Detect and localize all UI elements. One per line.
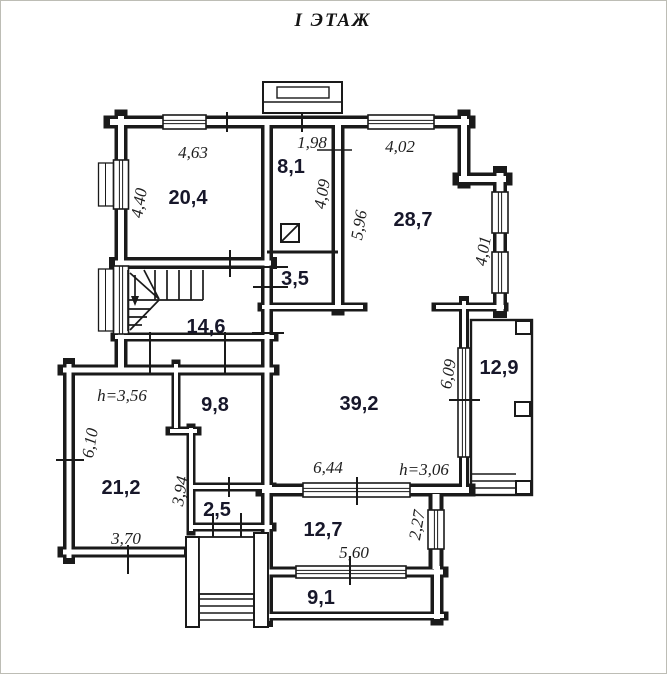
room-label-14-6: 14,6	[187, 316, 226, 338]
room-label-8-1: 8,1	[277, 156, 305, 178]
room-label-9-1: 9,1	[307, 587, 335, 609]
room-label-2-5: 2,5	[203, 499, 231, 521]
pillar	[516, 321, 531, 334]
room-label-20-4: 20,4	[169, 187, 209, 209]
floor-plan-page: I ЭТАЖ 20,4 8,1 28,7 3,5 14,6 9,8 39,2 1…	[0, 0, 667, 674]
dim-label-3-70: 3,70	[110, 529, 141, 548]
porch-landing	[199, 537, 254, 594]
pillar	[515, 402, 530, 416]
porch-pillar	[186, 537, 199, 627]
room-label-12-9: 12,9	[480, 357, 519, 379]
dim-label-h-3-56: h=3,56	[97, 386, 147, 405]
room-label-28-7: 28,7	[394, 209, 433, 231]
room-label-12-7: 12,7	[304, 519, 343, 541]
floor-plan-drawing: I ЭТАЖ 20,4 8,1 28,7 3,5 14,6 9,8 39,2 1…	[0, 0, 667, 674]
room-label-3-5: 3,5	[281, 268, 309, 290]
porch-pillar	[254, 533, 268, 627]
pillar	[516, 481, 531, 494]
dim-label-4-02: 4,02	[385, 137, 415, 156]
dim-label-5-60: 5,60	[339, 543, 369, 562]
plan-title: I ЭТАЖ	[293, 10, 371, 31]
dim-label-6-44: 6,44	[313, 458, 343, 477]
room-label-39-2: 39,2	[340, 393, 379, 415]
dim-label-1-98: 1,98	[297, 133, 327, 152]
room-label-21-2: 21,2	[102, 477, 141, 499]
room-label-9-8: 9,8	[201, 394, 229, 416]
dim-label-h-3-06: h=3,06	[399, 460, 449, 479]
dim-label-4-63: 4,63	[178, 143, 208, 162]
